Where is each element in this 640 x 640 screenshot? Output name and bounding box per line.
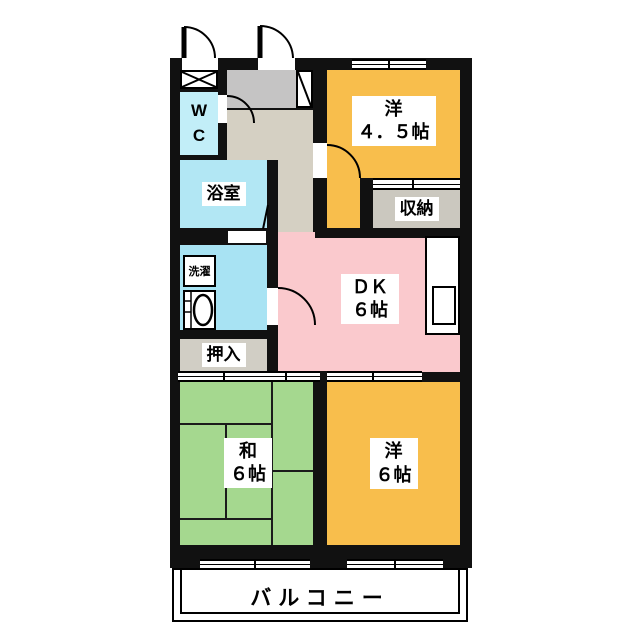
- storage-wall: [360, 178, 373, 228]
- balcony-label: バルコニー: [250, 582, 390, 612]
- laundry-label: 洗濯: [189, 263, 211, 279]
- floor-plan: W C 浴室 洗濯 押入 ＤＫ ６帖 洋 ４．５帖 収納: [0, 0, 640, 640]
- washing-machine-pan: 洗濯: [183, 255, 216, 287]
- room-wc: W C: [180, 92, 218, 155]
- tatami-line: [271, 470, 313, 472]
- storage-sliding-door: [373, 178, 460, 190]
- sliding-door-tick: [372, 371, 374, 382]
- sliding-door-mid-line: [373, 184, 460, 185]
- sliding-door-tick: [223, 371, 225, 382]
- room-western-6: 洋 ６帖: [327, 382, 460, 545]
- balcony: バルコニー: [172, 568, 468, 622]
- oshiire-label: 押入: [202, 343, 246, 367]
- western45-door-opening: [313, 143, 327, 178]
- western6-label-line2: ６帖: [376, 464, 412, 487]
- western6-label-line1: 洋: [376, 440, 412, 463]
- wc-door-opening: [218, 95, 227, 123]
- fixture-box: [296, 70, 313, 108]
- door-arc-entrance: [260, 26, 293, 58]
- sliding-door-tick: [285, 371, 287, 382]
- bath-label: 浴室: [202, 182, 246, 206]
- wall-stub: [320, 371, 327, 382]
- washroom-dk-door-opening: [267, 288, 278, 325]
- western45-label-line1: 洋: [358, 98, 430, 121]
- storage-label: 収納: [395, 197, 439, 221]
- room-oshiire: 押入: [180, 339, 267, 371]
- room-storage: 収納: [373, 190, 460, 228]
- door-arc-service: [184, 27, 215, 58]
- wc-label-line2: C: [193, 124, 205, 149]
- room-japanese-6: 和 ６帖: [180, 382, 313, 545]
- service-door-opening: [182, 58, 218, 70]
- tatami-line: [180, 518, 272, 520]
- window-top: [352, 59, 426, 70]
- sliding-doors-band: [178, 371, 422, 382]
- kitchen-sink: [432, 286, 456, 325]
- room-dk-west: [278, 232, 315, 372]
- western45-label: 洋 ４．５帖: [352, 96, 436, 146]
- washstand: [183, 290, 216, 330]
- entrance-door-opening: [258, 58, 295, 70]
- room-bath: 浴室: [180, 160, 267, 228]
- window-tick: [388, 59, 390, 70]
- japanese6-label-line2: ６帖: [230, 463, 266, 486]
- japanese6-label: 和 ６帖: [224, 438, 272, 488]
- dk-label-line2: ６帖: [347, 299, 393, 322]
- kitchen-counter: [425, 236, 460, 335]
- bath-door-opening: [228, 231, 266, 243]
- sliding-door-tick: [412, 178, 414, 190]
- hallway-upper: [227, 110, 313, 160]
- dk-label-line1: ＤＫ: [347, 276, 393, 299]
- japanese6-label-line1: 和: [230, 440, 266, 463]
- wc-label-line1: W: [191, 99, 207, 124]
- hallway-lower: [278, 160, 313, 232]
- sliding-door-mid-line: [178, 376, 422, 377]
- western6-label: 洋 ６帖: [370, 438, 418, 488]
- meter-box: [180, 70, 218, 89]
- western45-label-line2: ４．５帖: [358, 121, 430, 144]
- dk-label: ＤＫ ６帖: [341, 274, 399, 324]
